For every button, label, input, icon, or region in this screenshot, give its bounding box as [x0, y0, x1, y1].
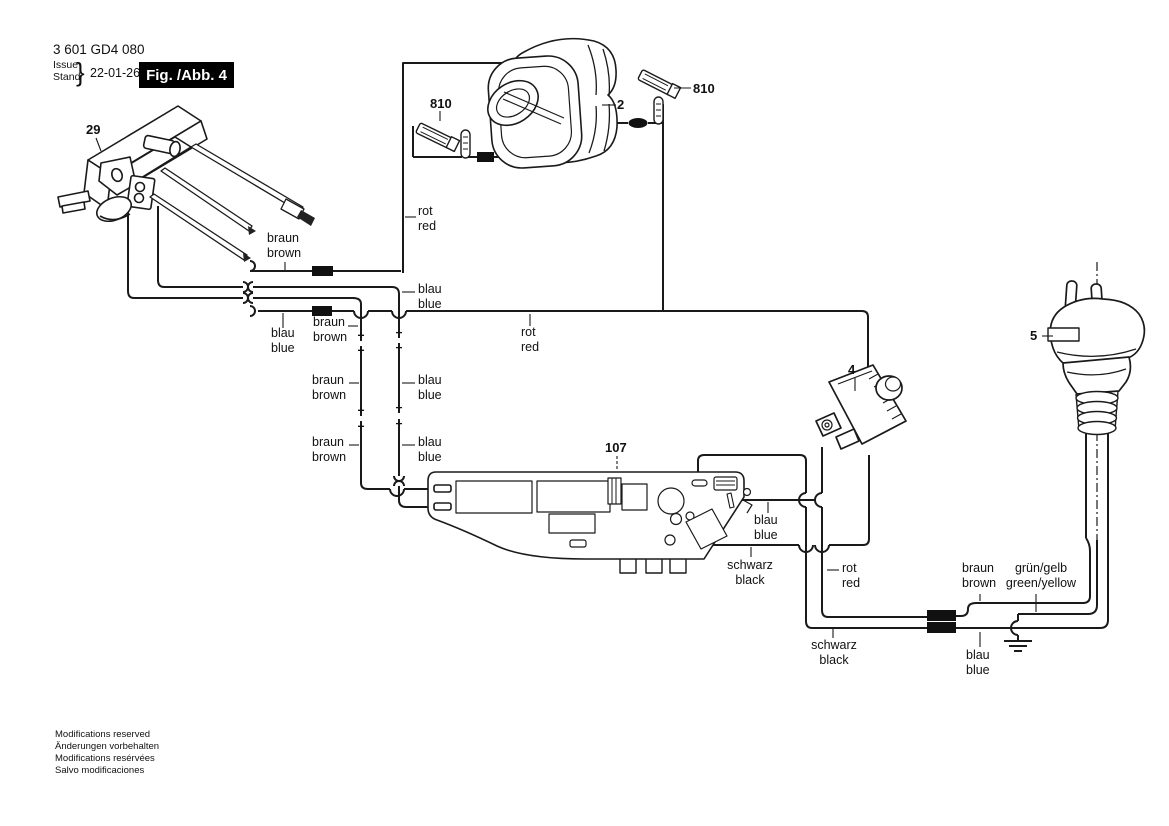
part-label-switch: 29 [86, 122, 100, 137]
wire-label-en: brown [962, 576, 996, 591]
wire-label-blau-switch: blau blue [271, 326, 295, 355]
part-label-brush-left: 810 [430, 96, 452, 111]
wire-label-braun-v2: braun brown [312, 435, 346, 464]
issue-date: 22-01-26 [90, 66, 140, 80]
figure-title-badge: Fig. /Abb. 4 [139, 62, 234, 88]
wire-label-de: braun [267, 231, 301, 246]
wire-label-en: blue [418, 388, 442, 403]
notice-line-fr: Modifications resérvées [55, 753, 159, 765]
wire-label-rot-left: rot red [418, 204, 436, 233]
wire-label-rot-right: rot red [842, 561, 860, 590]
suppressor-4-drawing [816, 365, 906, 449]
wire-label-en: brown [313, 330, 347, 345]
wire-label-de: braun [312, 435, 346, 450]
wire-label-blau-v1: blau blue [418, 373, 442, 402]
wire-plug-gruen-gelb [1011, 540, 1097, 640]
wire-label-en: red [521, 340, 539, 355]
modifications-notice: Modifications reserved Änderungen vorbeh… [55, 729, 159, 777]
polarity-minus-mark: − [395, 416, 402, 430]
wire-label-en: blue [966, 663, 990, 678]
wire-label-de: braun [312, 373, 346, 388]
wiring-diagram-artwork [0, 0, 1169, 826]
polarity-plus-mark: + [357, 419, 364, 433]
wire-label-en: green/yellow [1002, 576, 1080, 591]
armature-2-drawing [479, 39, 617, 170]
wire-label-en: red [418, 219, 436, 234]
wire-label-de: rot [521, 325, 539, 340]
module-107-drawing [428, 472, 752, 573]
part-label-suppressor: 4 [848, 362, 855, 377]
polarity-plus-mark: + [357, 403, 364, 417]
wire-label-blau-plug: blau blue [966, 648, 990, 677]
plug-5-drawing [1048, 281, 1144, 435]
wire-label-de: blau [418, 373, 442, 388]
brush-left-drawing [416, 122, 470, 158]
wire-label-rot-mid: rot red [521, 325, 539, 354]
polarity-minus-mark: − [395, 325, 402, 339]
wire-label-de: rot [418, 204, 436, 219]
notice-line-de: Änderungen vorbehalten [55, 741, 159, 753]
wire-label-de: blau [418, 435, 442, 450]
wire-label-braun-plug: braun brown [962, 561, 996, 590]
polarity-plus-mark: + [357, 343, 364, 357]
wire-label-de: blau [966, 648, 990, 663]
wire-label-en: brown [267, 246, 301, 261]
part-label-brush-right: 810 [693, 81, 715, 96]
wire-label-de: blau [754, 513, 778, 528]
wire-label-en: brown [312, 388, 346, 403]
issue-brace: } [76, 57, 85, 88]
ground-symbol [1004, 641, 1032, 651]
wire-label-de: grün/gelb [1002, 561, 1080, 576]
part-label-module: 107 [605, 440, 627, 455]
document-part-number: 3 601 GD4 080 [53, 42, 145, 57]
wire-label-braun-top: braun brown [267, 231, 301, 260]
wiring-diagram-page: 3 601 GD4 080 Issue Stand } 22-01-26 Fig… [0, 0, 1169, 826]
brush-right-drawing [638, 69, 681, 124]
wire-label-de: blau [418, 282, 442, 297]
wire-label-blau-v2: blau blue [418, 435, 442, 464]
part-label-plug: 5 [1030, 328, 1037, 343]
wire-label-en: black [806, 653, 862, 668]
wire-label-blau-board: blau blue [754, 513, 778, 542]
wire-label-en: blue [418, 297, 442, 312]
wire-label-de: blau [271, 326, 295, 341]
wire-label-de: braun [962, 561, 996, 576]
wire-label-de: schwarz [806, 638, 862, 653]
wire-label-en: blue [754, 528, 778, 543]
notice-line-en: Modifications reserved [55, 729, 159, 741]
wire-label-en: blue [418, 450, 442, 465]
wire-suppressor-rot [815, 447, 927, 617]
polarity-minus-mark: − [395, 340, 402, 354]
wire-label-en: blue [271, 341, 295, 356]
wire-label-schwarz-board: schwarz black [722, 558, 778, 587]
wire-label-en: red [842, 576, 860, 591]
wire-label-de: braun [313, 315, 347, 330]
polarity-plus-mark: + [357, 328, 364, 342]
wire-label-braun-mid: braun brown [313, 315, 347, 344]
wire-label-de: schwarz [722, 558, 778, 573]
wire-label-braun-v1: braun brown [312, 373, 346, 402]
wire-label-schwarz-bottom: schwarz black [806, 638, 862, 667]
part-label-armature: 2 [617, 97, 624, 112]
wire-label-en: brown [312, 450, 346, 465]
wire-label-en: black [722, 573, 778, 588]
wire-label-gruen-plug: grün/gelb green/yellow [1002, 561, 1080, 590]
notice-line-es: Salvo modificaciones [55, 765, 159, 777]
polarity-minus-mark: − [395, 400, 402, 414]
wire-label-blau-mid: blau blue [418, 282, 442, 311]
wire-label-de: rot [842, 561, 860, 576]
